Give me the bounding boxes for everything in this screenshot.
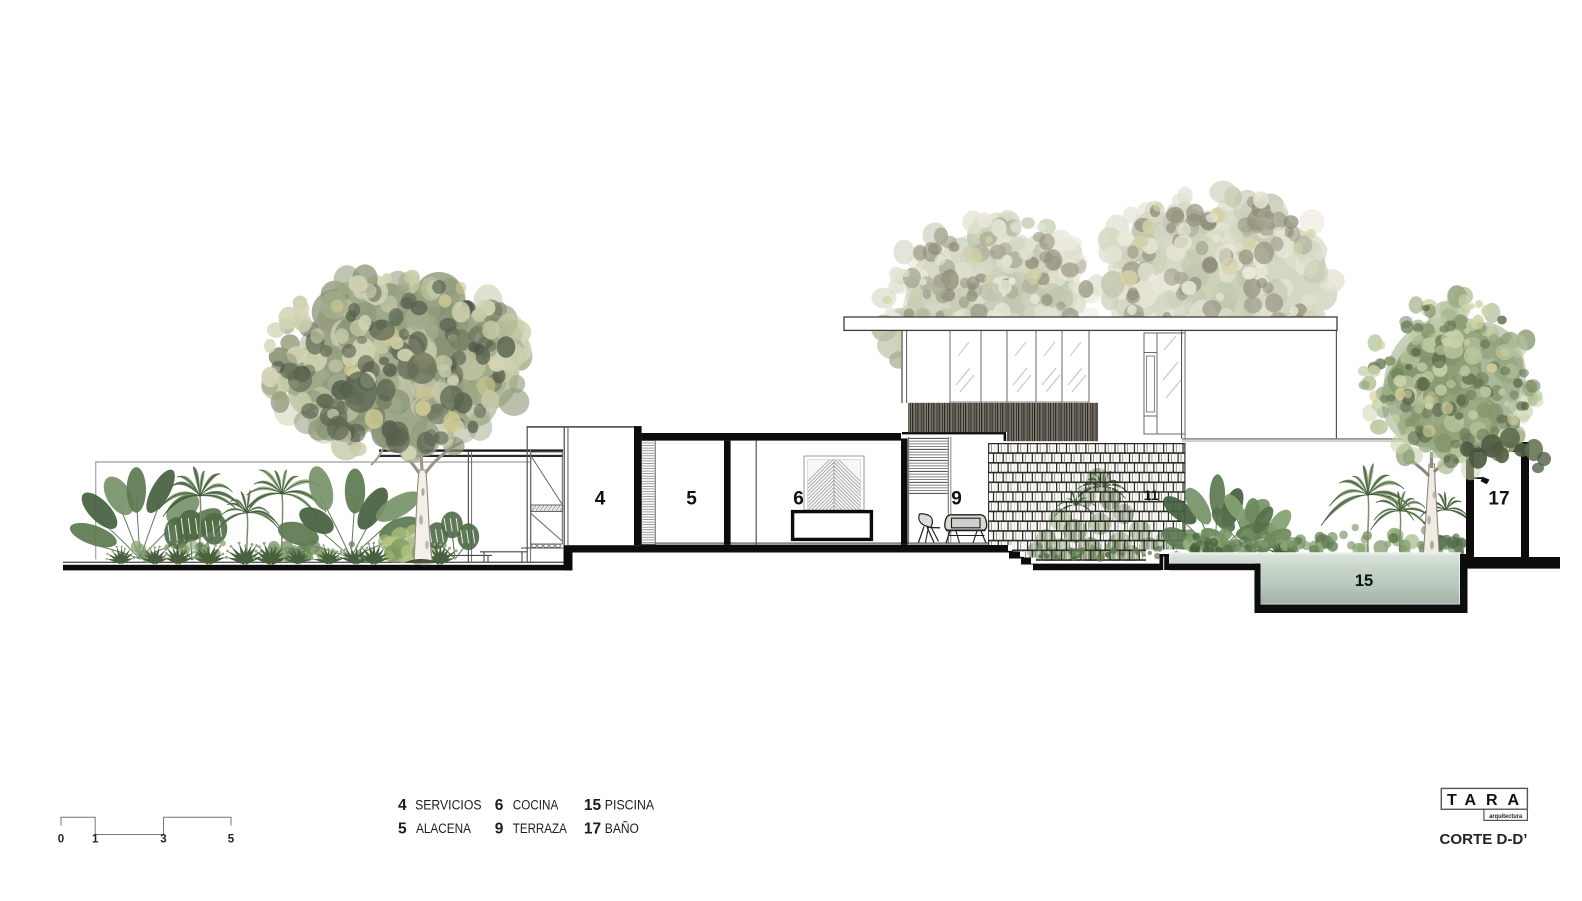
svg-text:11: 11 xyxy=(1144,487,1159,503)
svg-text:0: 0 xyxy=(58,834,64,846)
svg-text:A: A xyxy=(1508,792,1520,809)
svg-text:15: 15 xyxy=(584,797,602,814)
svg-text:15: 15 xyxy=(1355,572,1373,590)
svg-text:T: T xyxy=(1447,792,1457,809)
svg-text:1: 1 xyxy=(92,834,99,846)
svg-text:4: 4 xyxy=(595,489,606,510)
svg-text:9: 9 xyxy=(495,821,504,838)
svg-text:17: 17 xyxy=(584,821,601,838)
svg-text:BAÑO: BAÑO xyxy=(605,821,639,836)
svg-text:5: 5 xyxy=(228,834,235,846)
svg-text:4: 4 xyxy=(398,797,407,814)
svg-text:3: 3 xyxy=(160,834,166,846)
svg-text:PISCINA: PISCINA xyxy=(605,798,654,813)
svg-text:TERRAZA: TERRAZA xyxy=(513,821,567,836)
svg-text:CORTE D-D’: CORTE D-D’ xyxy=(1439,831,1527,848)
svg-text:17: 17 xyxy=(1488,489,1509,510)
svg-text:9: 9 xyxy=(951,489,962,510)
svg-text:5: 5 xyxy=(686,489,697,510)
svg-text:SERVICIOS: SERVICIOS xyxy=(415,798,481,813)
svg-text:COCINA: COCINA xyxy=(513,798,559,813)
svg-text:arquitectura: arquitectura xyxy=(1489,813,1522,820)
svg-text:6: 6 xyxy=(793,489,804,510)
svg-text:A: A xyxy=(1465,792,1477,809)
svg-text:R: R xyxy=(1486,792,1498,809)
svg-text:6: 6 xyxy=(495,797,504,814)
svg-text:ALACENA: ALACENA xyxy=(416,821,471,836)
svg-text:5: 5 xyxy=(398,821,407,838)
